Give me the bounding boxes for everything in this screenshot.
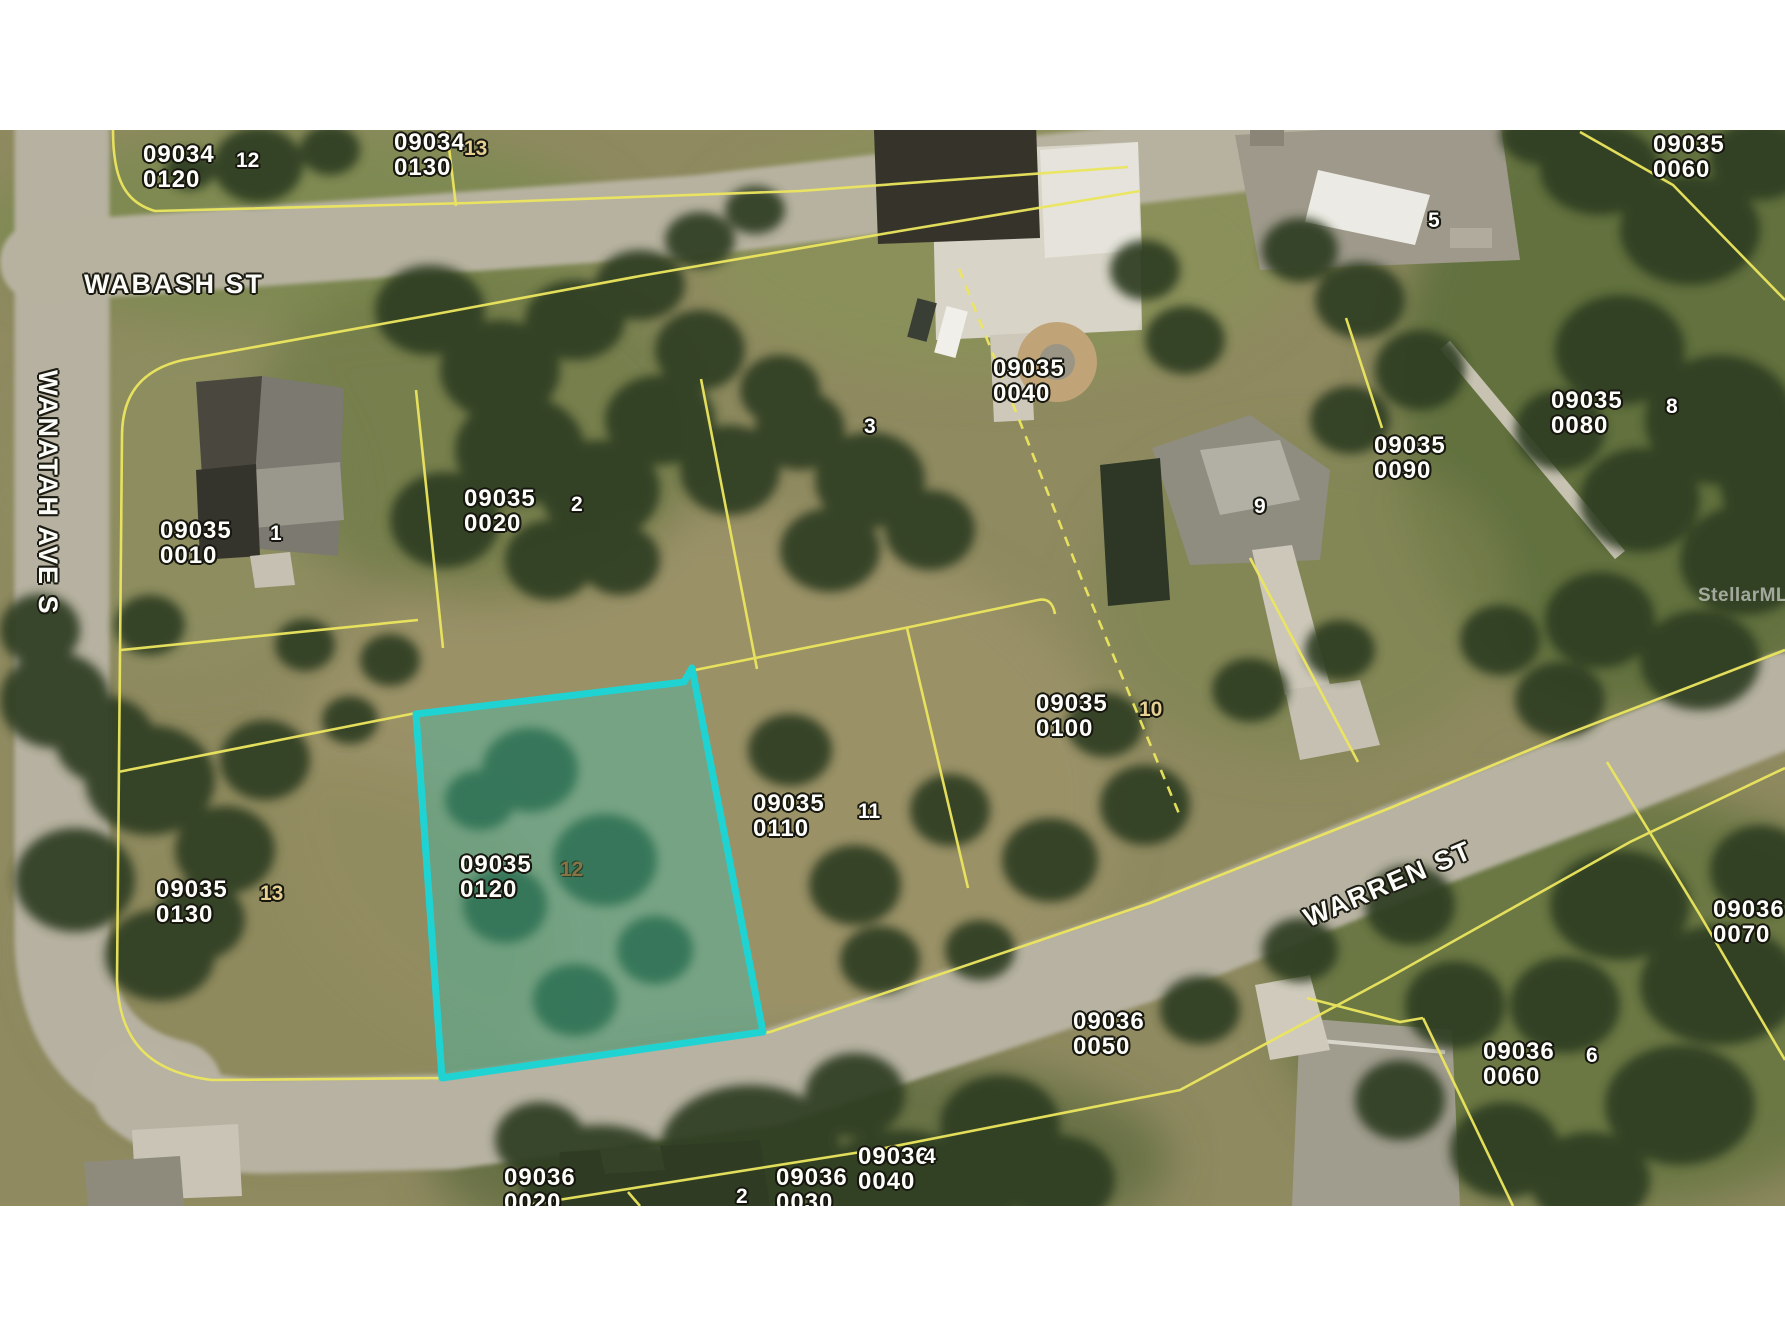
parcel-label-09036-0070: 090360070 xyxy=(1713,897,1785,947)
parcel-label-09036-0040: 090360040 xyxy=(858,1144,930,1194)
lot-number-2-south: 2 xyxy=(736,1186,748,1206)
parcel-label-09036-0030: 090360030 xyxy=(776,1165,848,1206)
street-label-wanatah: WANATAH AVE S xyxy=(34,370,62,590)
lot-number-10: 10 xyxy=(1139,699,1162,721)
parcel-label-09034-0120: 090340120 xyxy=(143,142,215,192)
lot-number-1: 1 xyxy=(270,523,282,545)
parcel-label-09035-0080: 090350080 xyxy=(1551,388,1623,438)
parcel-label-09034-0130: 090340130 xyxy=(394,130,466,180)
parcel-label-09035-0040: 090350040 xyxy=(993,356,1065,406)
lot-number-5: 5 xyxy=(1428,210,1440,232)
parcel-label-09035-0060: 090350060 xyxy=(1653,132,1725,182)
lot-number-13: 13 xyxy=(464,138,487,160)
parcel-label-09035-0090: 090350090 xyxy=(1374,433,1446,483)
lot-number-11: 11 xyxy=(858,801,880,823)
lot-number-3: 3 xyxy=(864,416,876,438)
parcel-label-09036-0020: 090360020 xyxy=(504,1165,576,1206)
aerial-parcel-map: WABASH ST WANATAH AVE S WARREN ST 090340… xyxy=(0,130,1785,1206)
lot-number-2: 2 xyxy=(571,494,583,516)
lot-number-12: 12 xyxy=(236,150,259,172)
lot-number-4: 4 xyxy=(924,1146,936,1168)
parcel-label-09036-0050: 090360050 xyxy=(1073,1009,1145,1059)
lot-number-9: 9 xyxy=(1254,496,1266,518)
parcel-label-09035-0020: 090350020 xyxy=(464,486,536,536)
lot-number-8: 8 xyxy=(1666,396,1678,418)
lot-number-6: 6 xyxy=(1586,1045,1598,1067)
lot-number-12-highlighted: 12 xyxy=(560,859,583,881)
screenshot-root: { "watermark": "StellarMLS", "streets": … xyxy=(0,0,1785,1338)
mls-watermark: StellarMLS xyxy=(1698,585,1785,607)
parcel-label-09035-0120: 090350120 xyxy=(460,852,532,902)
parcel-label-09035-0110: 090350110 xyxy=(753,791,825,841)
parcel-label-09036-0060: 090360060 xyxy=(1483,1039,1555,1089)
street-label-wabash: WABASH ST xyxy=(84,270,264,298)
parcel-label-09035-0010: 090350010 xyxy=(160,518,232,568)
lot-number-13-south: 13 xyxy=(260,883,283,905)
parcel-label-09035-0100: 090350100 xyxy=(1036,691,1108,741)
parcel-label-09035-0130: 090350130 xyxy=(156,877,228,927)
